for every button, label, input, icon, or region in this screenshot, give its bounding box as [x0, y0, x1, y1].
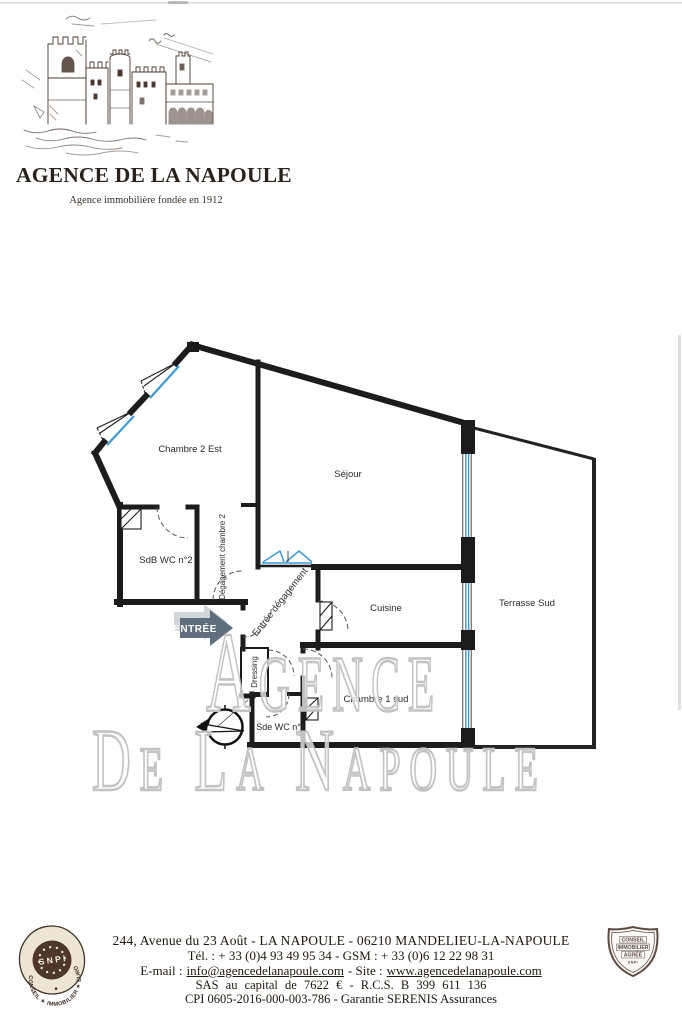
shield-line2: IMMOBILIER [617, 945, 648, 951]
shield-line4: SNPI [628, 961, 638, 965]
scanned-listing-page: AGENCE DE LA NAPOULE Agence immobilière … [0, 0, 682, 1024]
glazed-bay-icon [463, 454, 471, 728]
room-label-entree-degagement: Entrée dégagement [250, 566, 310, 639]
footer-address: 244, Avenue du 23 Août - LA NAPOULE - 06… [0, 933, 682, 948]
compass-icon: N [196, 700, 248, 749]
entrance-label: ENTRÉE [173, 622, 217, 635]
footer-company: SAS au capital de 7622 € - R.C.S. B 399 … [0, 978, 682, 992]
room-label-sde-wc-1: Sde WC n°1 [256, 722, 306, 732]
email-link[interactable]: info@agencedelanapoule.com [187, 963, 344, 978]
footer-email-site-line: E-mail : info@agencedelanapoule.com - Si… [0, 963, 682, 978]
room-label-degagement-chambre-2: Dégagement chambre 2 [218, 514, 227, 600]
footer-cpi: CPI 0605-2016-000-003-786 - Garantie SER… [0, 992, 682, 1006]
site-link[interactable]: www.agencedelanapoule.com [387, 963, 542, 978]
floor-plan: ENTRÉE N Chambre 2 Est Séjour SdB WC n°2… [0, 0, 682, 1024]
snpi-seal: CONSEIL ★ IMMOBILIER ★ EUROPÉEN S N P I [10, 916, 94, 1008]
entrance-arrow: ENTRÉE [173, 604, 233, 646]
site-label: - Site : [348, 963, 383, 978]
room-label-dressing: Dressing [250, 656, 259, 688]
floorplan-walls [95, 342, 468, 745]
conseil-immobilier-shield: CONSEIL IMMOBILIER AGRÉÉ SNPI [604, 924, 662, 980]
room-label-sdb-wc-2: SdB WC n°2 [139, 555, 192, 566]
sejour-window-icon [258, 551, 314, 566]
room-label-terrasse-sud: Terrasse Sud [499, 598, 555, 609]
footer-phone: Tél. : + 33 (0)4 93 49 95 34 - GSM : + 3… [0, 948, 682, 963]
room-label-sejour: Séjour [334, 469, 361, 480]
shield-line1: CONSEIL [621, 938, 645, 944]
footer-contact-block: 244, Avenue du 23 Août - LA NAPOULE - 06… [0, 933, 682, 1006]
room-label-chambre-1-sud: Chambre 1 sud [344, 694, 409, 705]
terrace-walls [468, 427, 596, 747]
email-label: E-mail : [140, 963, 182, 978]
room-label-cuisine: Cuisine [370, 603, 402, 614]
room-label-chambre-2-est: Chambre 2 Est [158, 444, 222, 455]
shield-line3: AGRÉÉ [624, 951, 643, 959]
